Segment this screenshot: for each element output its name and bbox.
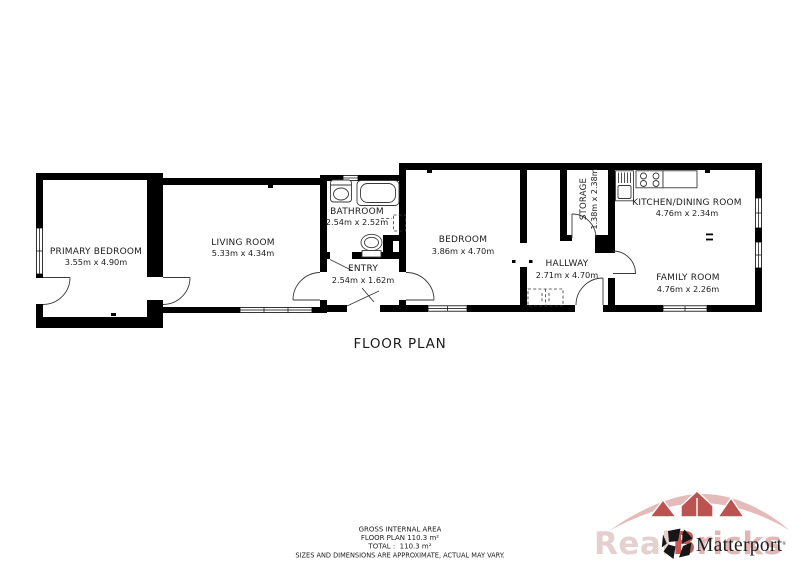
door-living-to-entry bbox=[293, 273, 320, 301]
window-bedroom-bottom bbox=[428, 306, 467, 311]
room-divider-mark bbox=[706, 234, 713, 236]
kitchen-sink-icon bbox=[616, 171, 634, 201]
kitchen-counter-icon bbox=[663, 171, 697, 188]
door-entry-front bbox=[347, 288, 379, 306]
branding: RealBricks Matterport® bbox=[594, 491, 789, 562]
floor-plan-canvas: PRIMARY BEDROOM 3.55m x 4.90m LIVING ROO… bbox=[0, 0, 800, 566]
room-label-hallway: HALLWAY bbox=[546, 259, 589, 269]
room-dims-bedroom: 3.86m x 4.70m bbox=[432, 246, 494, 256]
room-label-bedroom: BEDROOM bbox=[439, 235, 487, 245]
room-dims-entry: 2.54m x 1.62m bbox=[332, 275, 394, 285]
footer-disclaimer: SIZES AND DIMENSIONS ARE APPROXIMATE, AC… bbox=[295, 552, 504, 560]
toilet-icon bbox=[361, 234, 382, 257]
room-divider-mark bbox=[706, 239, 713, 241]
door-hallway-exterior bbox=[576, 278, 603, 305]
window-primary-bedroom-left bbox=[37, 228, 43, 274]
footer-gross-area: GROSS INTERNAL AREA bbox=[359, 526, 442, 534]
room-label-storage: STORAGE bbox=[579, 178, 589, 220]
door-entry-to-bedroom bbox=[406, 272, 434, 300]
bathtub-icon bbox=[357, 181, 399, 206]
page-title: FLOOR PLAN bbox=[353, 336, 446, 352]
room-label-primary-bedroom: PRIMARY BEDROOM bbox=[50, 247, 142, 257]
door-primary-to-living bbox=[163, 278, 190, 305]
matterport-wordmark: Matterport® bbox=[696, 535, 787, 556]
realbricks-roof-icon bbox=[609, 491, 789, 531]
footer-floorplan-area: FLOOR PLAN 110.3 m² bbox=[361, 534, 439, 542]
footer: GROSS INTERNAL AREA FLOOR PLAN 110.3 m² … bbox=[295, 526, 504, 560]
room-dims-kitchen-dining: 4.76m x 2.34m bbox=[656, 208, 718, 218]
door-primary-bedroom-exterior bbox=[43, 278, 70, 305]
room-label-family-room: FAMILY ROOM bbox=[656, 273, 720, 283]
room-dims-storage: 1.38m x 2.38m bbox=[590, 168, 599, 229]
room-dims-family-room: 4.76m x 2.26m bbox=[657, 284, 719, 294]
room-dims-hallway: 2.71m x 4.70m bbox=[536, 270, 598, 280]
room-dims-bathroom: 2.54m x 2.52m bbox=[326, 217, 388, 227]
window-kitchen-right bbox=[756, 198, 762, 228]
room-label-kitchen-dining: KITCHEN/DINING ROOM bbox=[632, 198, 742, 208]
bathroom-sink-icon bbox=[331, 180, 352, 202]
footer-total-area: TOTAL : 110.3 m² bbox=[367, 543, 431, 551]
hallway-appliance-dashed bbox=[528, 289, 563, 306]
floorplan-page: PRIMARY BEDROOM 3.55m x 4.90m LIVING ROO… bbox=[0, 0, 800, 566]
stove-icon bbox=[636, 171, 663, 188]
room-label-entry: ENTRY bbox=[348, 264, 378, 274]
window-family-room-bottom bbox=[663, 306, 707, 311]
room-label-bathroom: BATHROOM bbox=[330, 207, 384, 217]
room-label-living-room: LIVING ROOM bbox=[211, 238, 274, 248]
room-dims-primary-bedroom: 3.55m x 4.90m bbox=[65, 257, 127, 267]
window-family-right bbox=[756, 242, 762, 268]
window-living-room-bottom bbox=[240, 308, 312, 313]
door-hallway-to-family bbox=[613, 251, 636, 274]
room-dims-living-room: 5.33m x 4.34m bbox=[212, 248, 274, 258]
